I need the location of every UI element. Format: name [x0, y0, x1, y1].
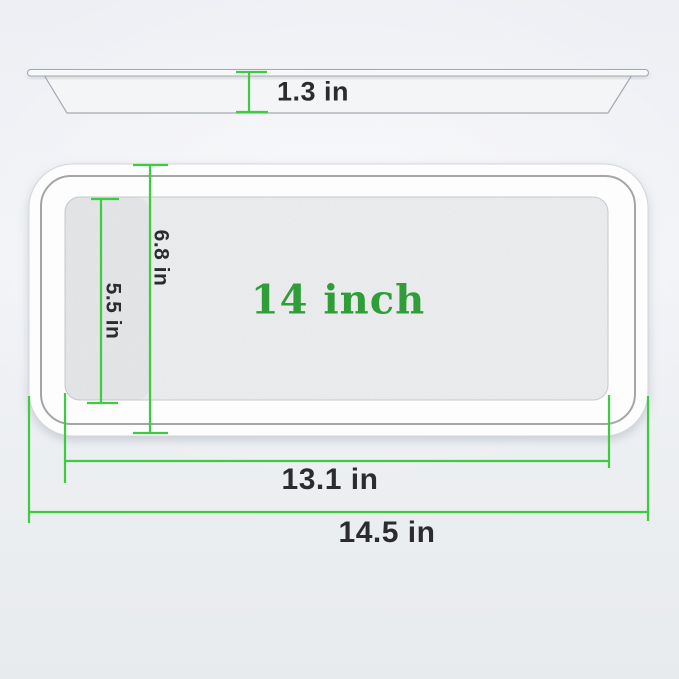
side-height-label: 1.3 in [277, 79, 349, 106]
side-view-tray-rim [28, 70, 649, 77]
floor-depth-label: 5.5 in [103, 283, 124, 340]
floor-width-label: 13.1 in [282, 465, 379, 495]
inner-depth-label: 6.8 in [151, 230, 172, 287]
overall-width-label: 14.5 in [339, 518, 436, 548]
tray-size-label: 14 inch [251, 277, 425, 324]
product-dimension-diagram: 1.3 in 6.8 in 5.5 in 14 inch 13.1 in 14.… [0, 0, 679, 679]
